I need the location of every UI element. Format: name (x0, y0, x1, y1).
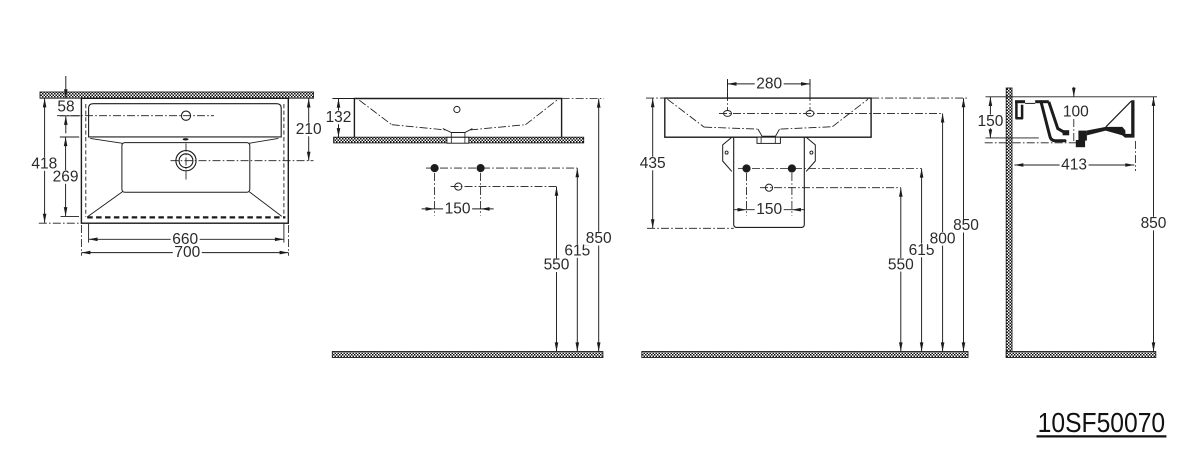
svg-text:435: 435 (640, 155, 666, 172)
svg-text:150: 150 (756, 201, 782, 218)
svg-text:850: 850 (586, 230, 612, 247)
svg-text:10SF50070: 10SF50070 (1038, 407, 1166, 438)
svg-text:58: 58 (57, 99, 74, 116)
svg-text:269: 269 (53, 169, 79, 186)
svg-text:800: 800 (930, 230, 956, 247)
svg-text:850: 850 (953, 217, 979, 234)
svg-text:100: 100 (1063, 104, 1089, 121)
svg-text:850: 850 (1141, 215, 1167, 232)
svg-text:210: 210 (296, 121, 322, 138)
svg-text:150: 150 (977, 113, 1003, 130)
svg-text:280: 280 (756, 75, 782, 92)
svg-text:413: 413 (1061, 157, 1087, 174)
svg-text:150: 150 (445, 200, 471, 217)
svg-text:700: 700 (174, 244, 200, 261)
svg-text:132: 132 (326, 109, 352, 126)
